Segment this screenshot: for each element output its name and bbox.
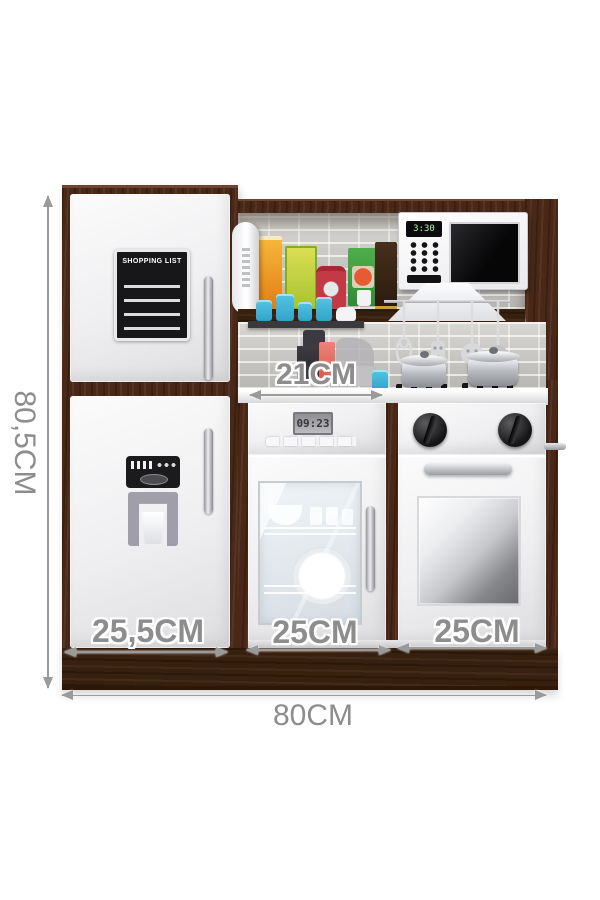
tea-box-label: [352, 266, 374, 288]
dishwasher-handle: [366, 506, 375, 591]
pot-left: [402, 362, 446, 387]
height-dimension-arrow: [47, 196, 49, 688]
dishwasher-glass-sheen: [260, 483, 360, 623]
blue-cup-1: [256, 300, 272, 321]
dishwasher-clock: 09:23: [293, 412, 333, 435]
microwave-display-text: 3:30: [413, 224, 435, 234]
microwave-display: 3:30: [406, 221, 442, 237]
shopping-list-title: SHOPPING LIST: [117, 258, 187, 265]
dishwasher-clock-text: 09:23: [296, 417, 329, 430]
microwave-start-button: [407, 275, 441, 283]
knob-pointer: [508, 415, 523, 445]
middle-width-arrow: [247, 649, 390, 651]
knob-pointer: [423, 415, 438, 445]
food-mug: [357, 290, 371, 306]
total-width-arrow: [62, 695, 546, 696]
fridge-water-dispenser: [126, 456, 180, 546]
fridge-bottom-door-handle: [204, 428, 213, 514]
towel-rod: [544, 443, 566, 450]
toy-telephone: [232, 222, 259, 314]
microwave-window: [449, 222, 520, 284]
dispenser-oval-button: [140, 474, 168, 485]
pot-right: [468, 358, 518, 386]
fridge-width-arrow: [65, 651, 227, 653]
dispenser-icons: [131, 461, 153, 469]
oven-width-label: 25CM: [407, 613, 547, 650]
fridge-width-label: 25,5CM: [78, 613, 218, 650]
dishwasher-glass: [258, 481, 362, 625]
middle-width-label: 25CM: [245, 614, 385, 651]
dispenser-icon-dots: [156, 461, 176, 469]
oven-width-arrow: [398, 647, 546, 649]
oven-knob-left: [413, 413, 447, 447]
cup-shelf-board: [248, 321, 364, 328]
oven-knob-right: [498, 413, 532, 447]
oven-door-handle: [424, 463, 512, 475]
microwave: 3:30: [398, 212, 528, 290]
height-dimension-label: 80,5CM: [8, 383, 40, 503]
telephone-cord: [242, 248, 250, 288]
base-plinth: [62, 648, 558, 690]
oven-window: [417, 496, 521, 606]
dispenser-cup: [142, 512, 164, 544]
countertop-dimension-arrow: [250, 394, 382, 396]
dispenser-control-panel: [126, 456, 180, 488]
fridge-top-door-handle: [204, 276, 213, 380]
shopping-list-lines: [124, 274, 180, 332]
product-dimension-image: SHOPPING LIST 3:30: [0, 0, 600, 900]
shopping-list-board: SHOPPING LIST: [114, 249, 190, 341]
total-width-label: 80CM: [243, 699, 383, 733]
white-teapot: [336, 307, 356, 321]
dishwasher-button-row: [266, 437, 356, 446]
cabinet-divider: [386, 403, 398, 648]
blue-cup-3: [316, 297, 332, 321]
blue-cup-2: [298, 302, 312, 321]
countertop-dimension-label: 21CM: [246, 358, 386, 392]
microwave-keypad: [408, 241, 441, 273]
right-side-strip: [546, 380, 558, 648]
lower-left-frame-strip: [238, 403, 248, 648]
dishwasher-buttons: [266, 437, 356, 446]
blue-pitcher: [276, 294, 294, 321]
